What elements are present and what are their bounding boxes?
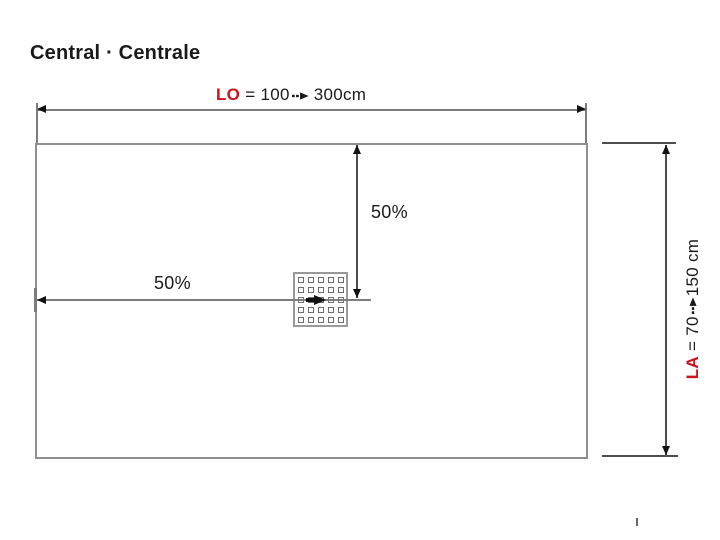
drain-hole — [298, 277, 304, 283]
width-arrow-down-icon — [662, 446, 670, 455]
drain-vertical-position-label: 50% — [371, 202, 408, 223]
drain-horizontal-arrow-left-icon — [37, 296, 46, 304]
width-arrow-up-icon — [662, 145, 670, 154]
equals-sign: = — [245, 85, 255, 104]
drain-hole — [298, 287, 304, 293]
length-arrow-left-icon — [37, 105, 46, 113]
length-arrow-right-icon — [577, 105, 586, 113]
drain-hole — [298, 307, 304, 313]
length-dimension-line — [37, 109, 586, 111]
width-code: LA — [683, 356, 703, 379]
length-dimension-label: LO=100300cm — [216, 85, 366, 105]
drain-hole — [318, 317, 324, 323]
drain-hole — [338, 317, 344, 323]
drain-hole — [338, 277, 344, 283]
length-max-value: 300cm — [314, 85, 367, 104]
drain-horizontal-position-label: 50% — [154, 273, 191, 294]
drain-hole — [338, 287, 344, 293]
drain-hole — [328, 277, 334, 283]
drain-hole — [308, 317, 314, 323]
range-arrow-icon — [688, 297, 698, 314]
page-title: Central · Centrale — [30, 42, 200, 65]
drain-hole — [308, 277, 314, 283]
width-dimension-tick-bottom — [602, 455, 678, 457]
equals-sign: = — [683, 341, 703, 351]
drain-hole — [318, 277, 324, 283]
artifact-mark — [636, 518, 638, 526]
length-min-value: 100 — [260, 85, 289, 104]
drain-vertical-arrow-up-icon — [353, 145, 361, 154]
drain-hole — [318, 307, 324, 313]
drain-hole — [328, 307, 334, 313]
drain-vertical-dimension-line — [356, 145, 358, 298]
range-arrow-icon — [292, 91, 309, 101]
width-max-value: 150 cm — [683, 239, 703, 297]
drain-hole — [338, 307, 344, 313]
width-dimension-tick-top — [602, 142, 676, 144]
drain-hole — [318, 287, 324, 293]
width-dimension-line — [665, 145, 667, 455]
length-code: LO — [216, 85, 240, 104]
width-min-value: 70 — [683, 316, 703, 336]
drain-hole — [298, 317, 304, 323]
drain-hole — [308, 307, 314, 313]
drain-hole — [308, 287, 314, 293]
diagram-canvas: Central · Centrale LO=100300cm 50% 50% L… — [0, 0, 720, 540]
drain-hole — [328, 317, 334, 323]
width-dimension-label: LA=70150 cm — [682, 229, 704, 389]
drain-hole — [328, 287, 334, 293]
drain-vertical-arrow-down-icon — [353, 289, 361, 298]
drain-horizontal-arrow-right-icon — [314, 295, 326, 305]
